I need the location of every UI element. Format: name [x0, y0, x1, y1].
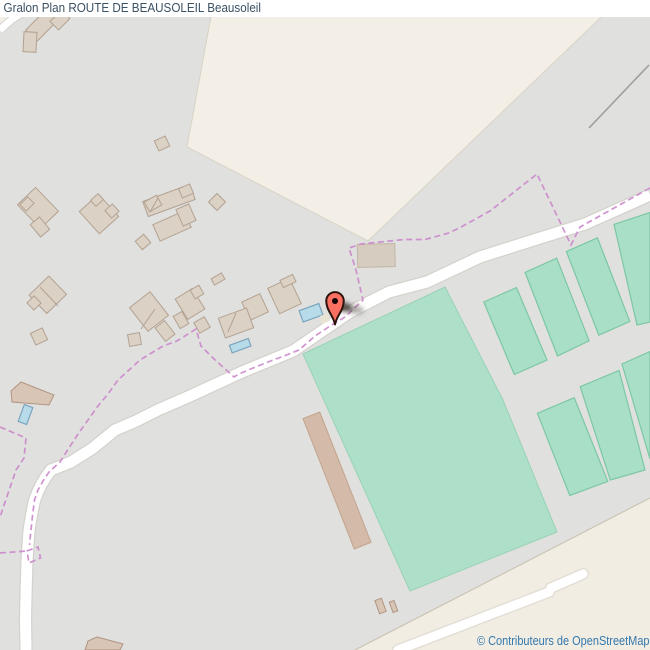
svg-text:Gralon Plan ROUTE DE BEAUSOLEI: Gralon Plan ROUTE DE BEAUSOLEIL Beausole…	[4, 0, 262, 15]
svg-text:© Contributeurs de OpenStreetM: © Contributeurs de OpenStreetMap	[477, 633, 650, 648]
